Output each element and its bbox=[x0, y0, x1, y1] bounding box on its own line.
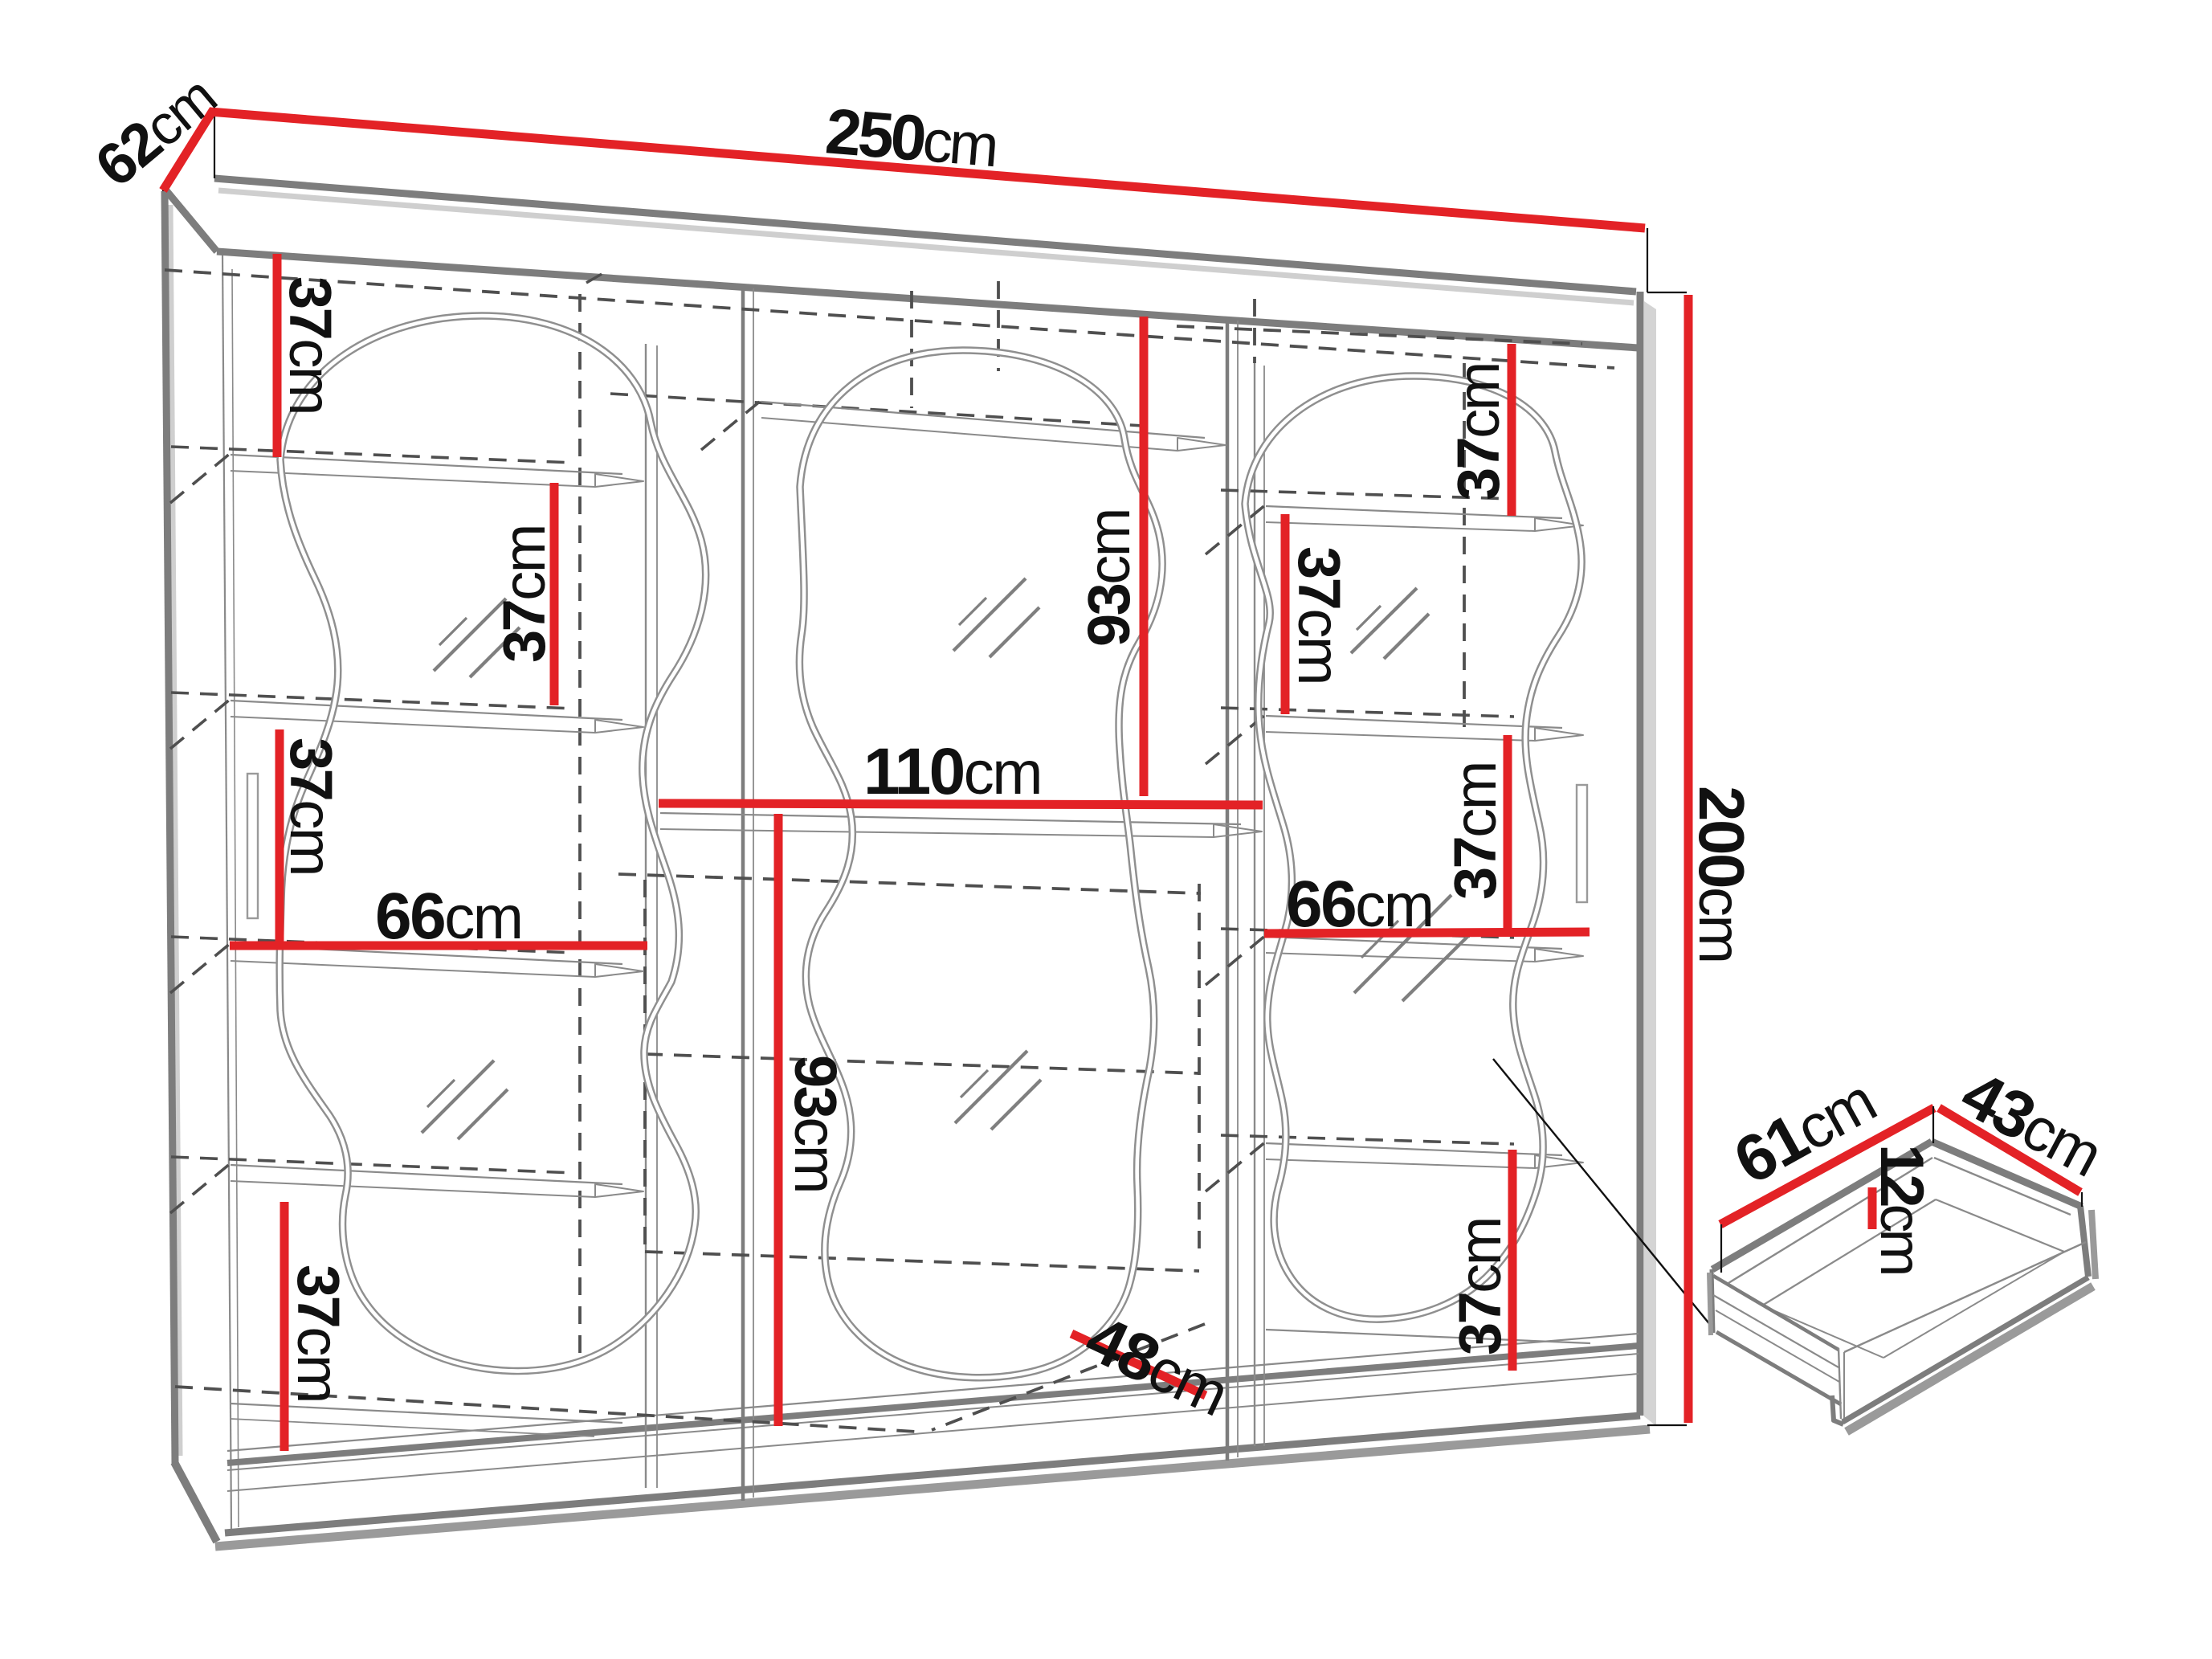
svg-text:93cm: 93cm bbox=[1075, 509, 1142, 647]
svg-text:12cm: 12cm bbox=[1867, 1144, 1936, 1274]
svg-text:37cm: 37cm bbox=[277, 276, 344, 414]
svg-text:37cm: 37cm bbox=[1445, 363, 1512, 501]
svg-text:66cm: 66cm bbox=[1286, 868, 1433, 941]
svg-text:66cm: 66cm bbox=[375, 880, 522, 953]
svg-text:37cm: 37cm bbox=[491, 525, 557, 663]
svg-text:37cm: 37cm bbox=[1447, 1218, 1513, 1355]
svg-text:37cm: 37cm bbox=[285, 1265, 352, 1402]
svg-text:37cm: 37cm bbox=[278, 738, 345, 875]
svg-text:200cm: 200cm bbox=[1686, 786, 1757, 962]
svg-text:93cm: 93cm bbox=[782, 1055, 849, 1192]
svg-text:37cm: 37cm bbox=[1442, 762, 1508, 900]
svg-text:110cm: 110cm bbox=[863, 735, 1041, 808]
svg-text:37cm: 37cm bbox=[1286, 546, 1353, 684]
